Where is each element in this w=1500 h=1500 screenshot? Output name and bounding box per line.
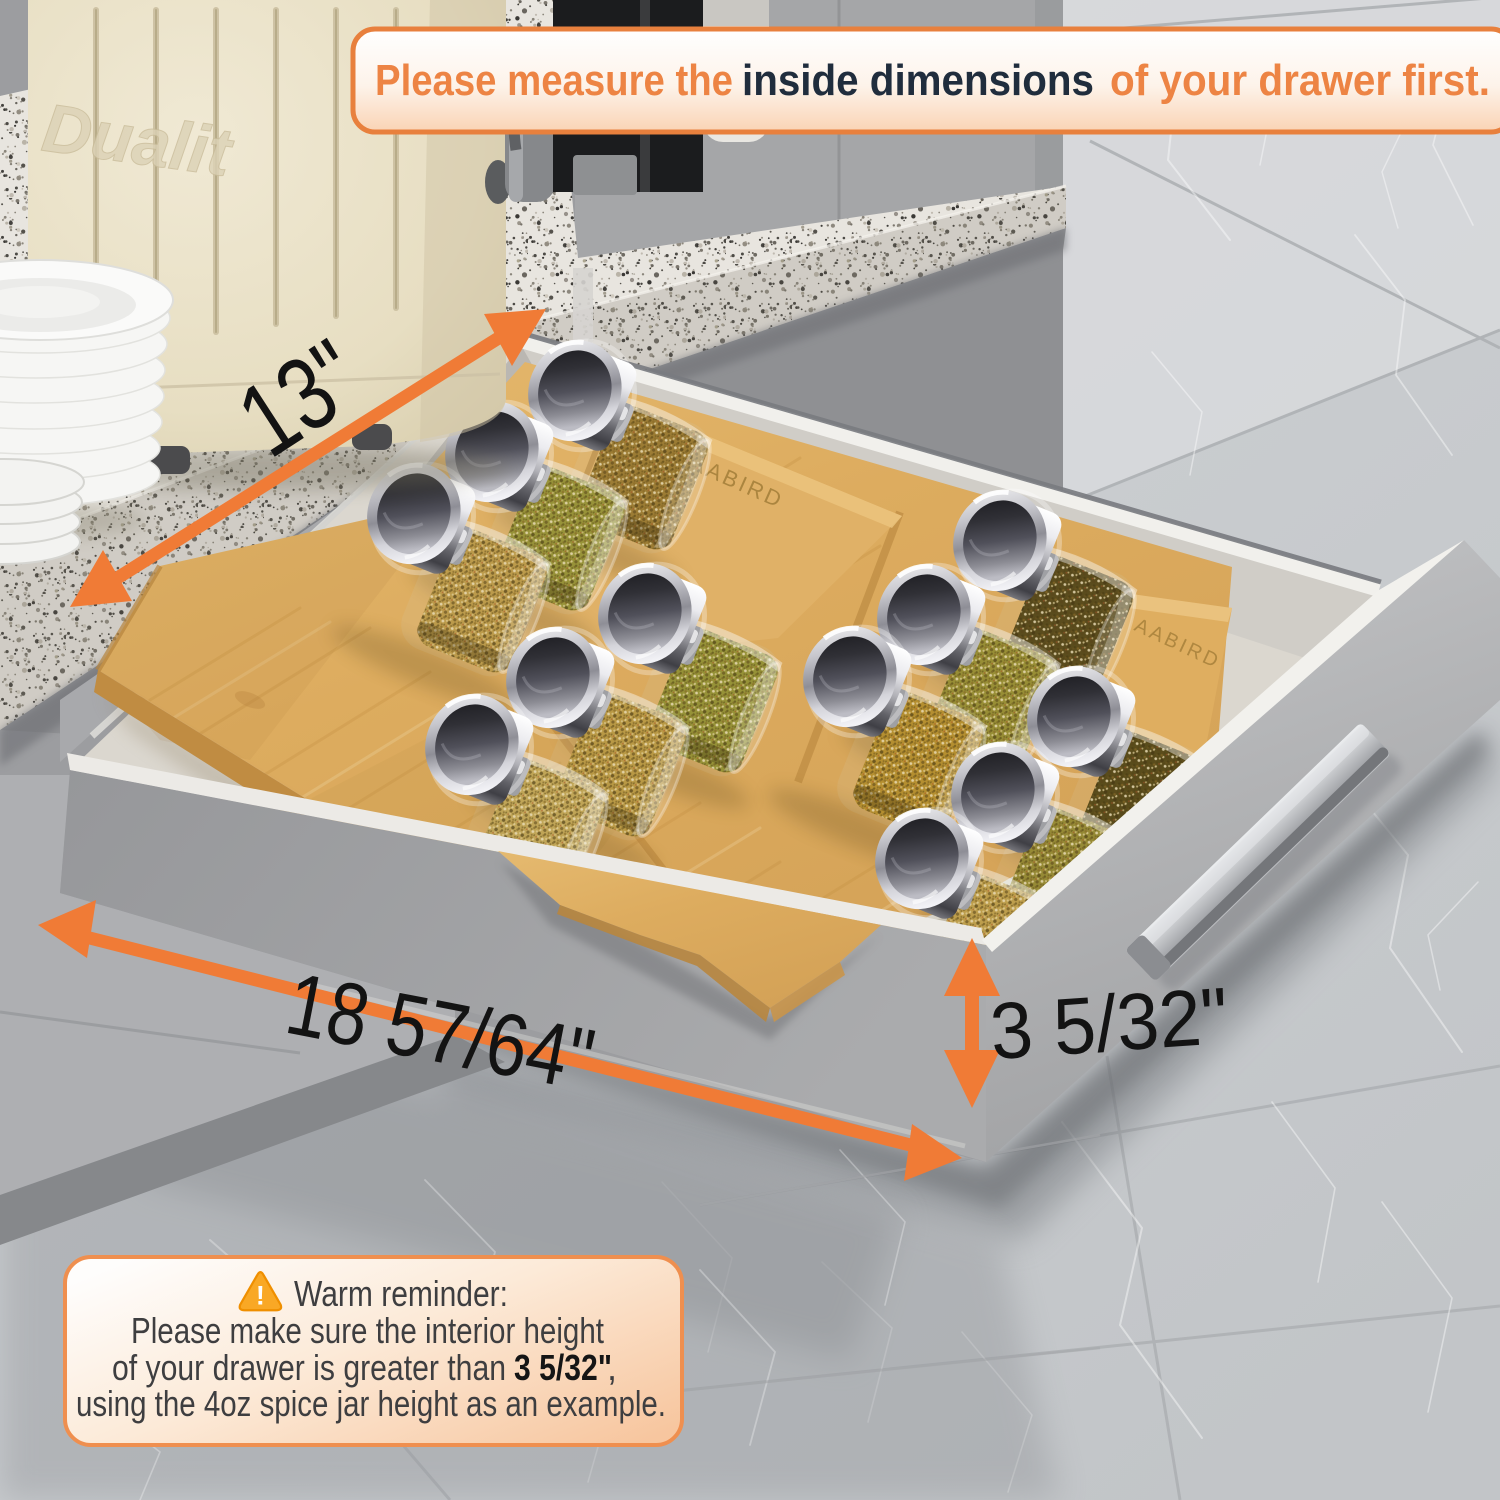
svg-text:inside dimensions: inside dimensions (742, 56, 1094, 105)
svg-text:of your drawer is greater than: of your drawer is greater than (112, 1347, 506, 1388)
svg-text:3 5/32": 3 5/32" (514, 1347, 612, 1388)
svg-text:Warm reminder:: Warm reminder: (294, 1273, 508, 1314)
svg-text:!: ! (256, 1281, 265, 1311)
svg-text:,: , (607, 1347, 617, 1388)
svg-text:Please make sure the interior: Please make sure the interior height (131, 1310, 604, 1351)
svg-text:of your drawer first.: of your drawer first. (1110, 56, 1490, 105)
svg-text:Please measure the: Please measure the (375, 56, 733, 105)
svg-text:using the 4oz spice jar height: using the 4oz spice jar height as an exa… (76, 1383, 666, 1424)
svg-text:3 5/32": 3 5/32" (987, 971, 1231, 1076)
